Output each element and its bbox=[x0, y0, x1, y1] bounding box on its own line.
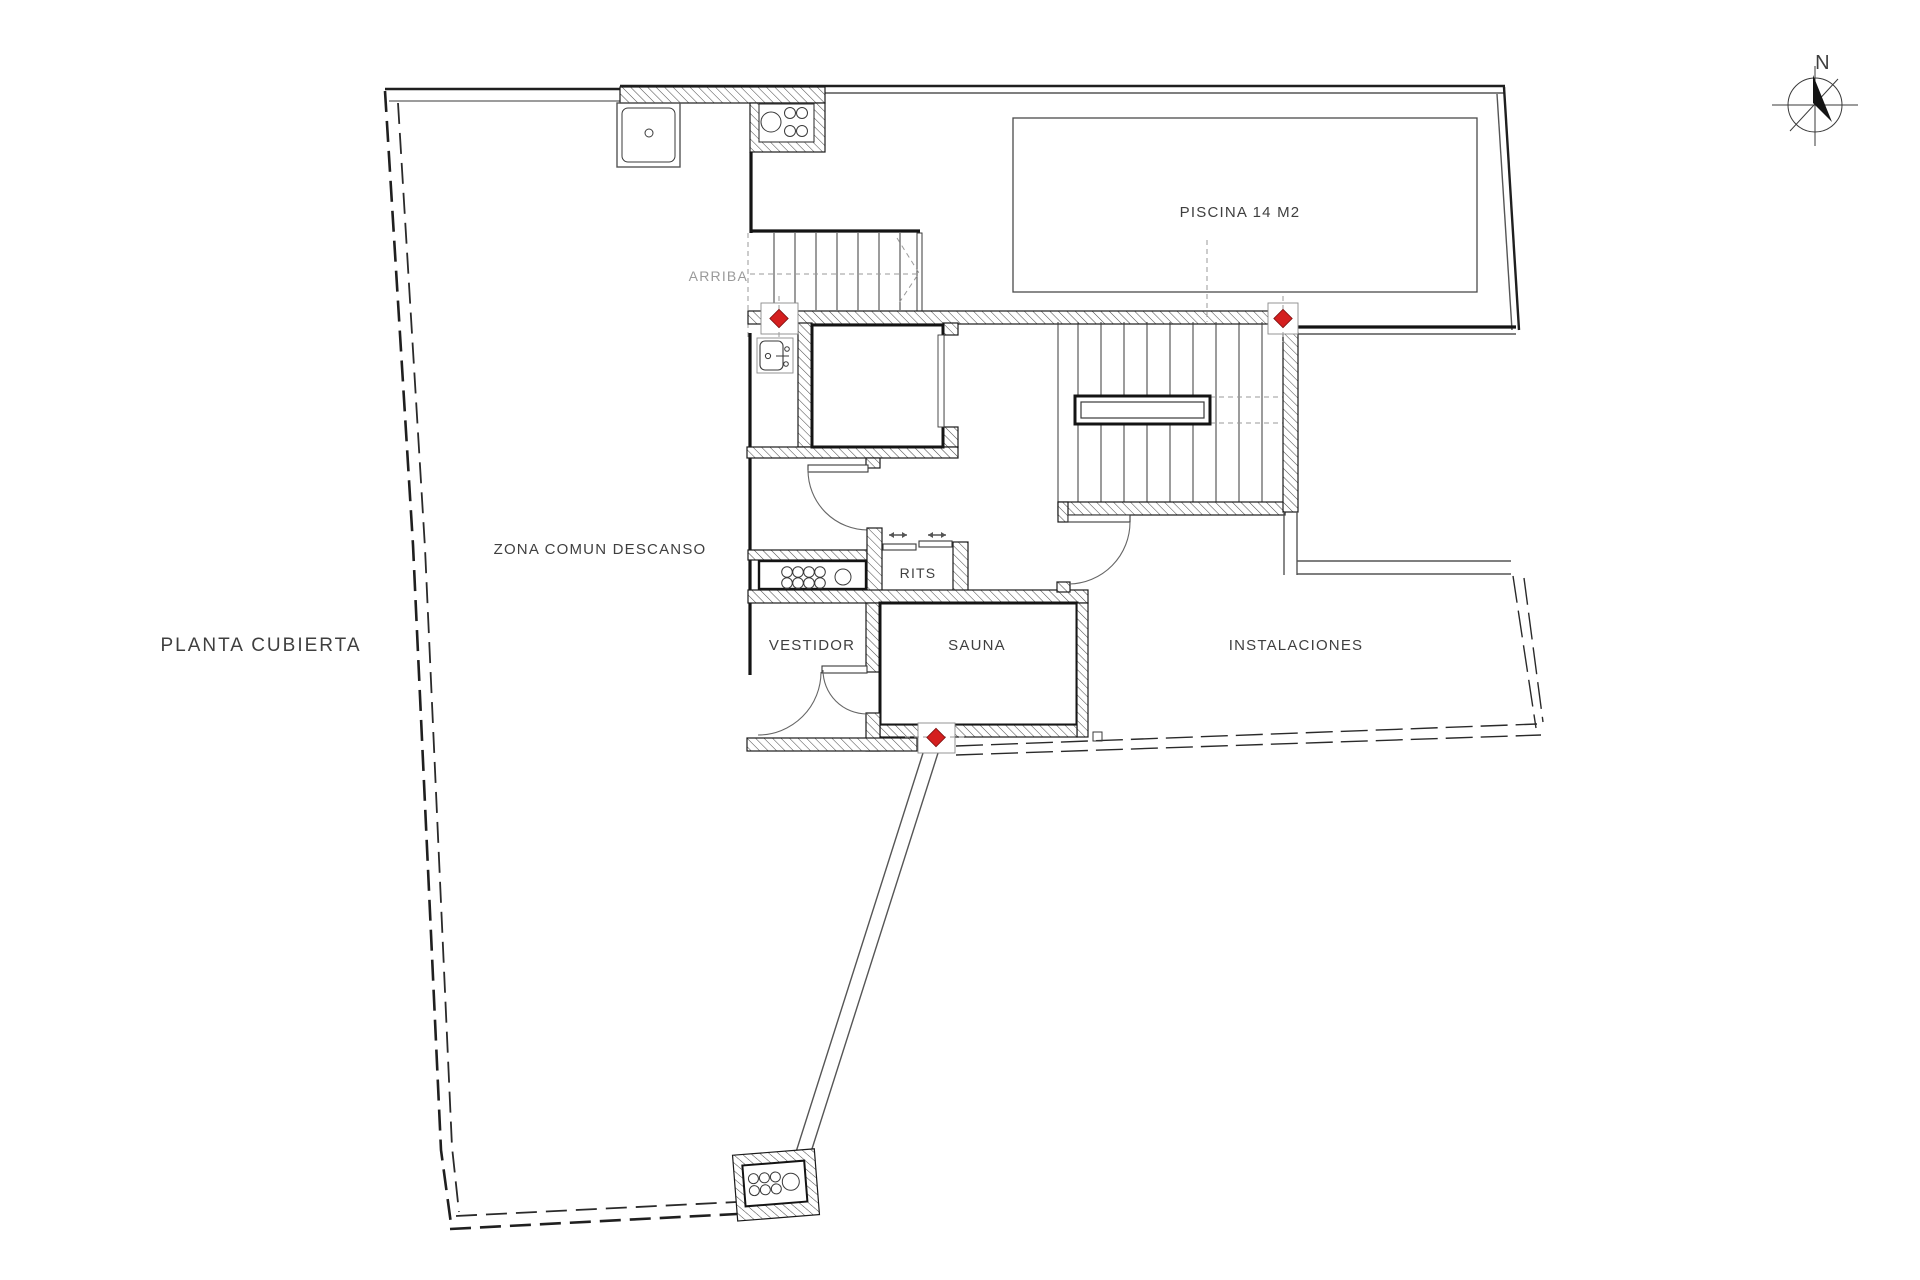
stair-bottom-door bbox=[1068, 515, 1130, 584]
zona-comun-label: ZONA COMUN DESCANSO bbox=[494, 541, 707, 558]
vent-box-top bbox=[759, 104, 814, 142]
skylight-box bbox=[617, 103, 680, 167]
cabinet-room bbox=[759, 561, 866, 589]
rits-label: RITS bbox=[900, 565, 937, 581]
sauna-room bbox=[880, 603, 1077, 725]
north-arrow: N bbox=[1772, 52, 1858, 146]
floor-plan-drawing: PISCINA 14 M2 ARRIBA bbox=[0, 0, 1920, 1280]
floor-plan-page: PISCINA 14 M2 ARRIBA bbox=[0, 0, 1920, 1280]
instalaciones-label: INSTALACIONES bbox=[1229, 637, 1364, 654]
pool-label: PISCINA 14 M2 bbox=[1180, 204, 1301, 221]
sauna-label: SAUNA bbox=[948, 637, 1006, 654]
vestidor-door bbox=[758, 666, 867, 735]
stair-direction-label: ARRIBA bbox=[689, 268, 748, 284]
sink bbox=[757, 338, 793, 373]
vent-box-bottom bbox=[733, 1149, 820, 1221]
north-label: N bbox=[1815, 52, 1831, 74]
rits-sliding-door bbox=[883, 532, 952, 550]
terrace-outline bbox=[385, 89, 737, 1229]
elevator-cab bbox=[812, 325, 943, 447]
vestidor-sauna-block: VESTIDOR SAUNA bbox=[747, 603, 1088, 751]
walkway bbox=[733, 753, 938, 1221]
stair-handrail bbox=[1075, 396, 1210, 424]
vestibule-door bbox=[808, 465, 868, 530]
vestidor-label: VESTIDOR bbox=[769, 637, 855, 654]
rits-block: RITS bbox=[748, 528, 1088, 603]
elevator-door bbox=[938, 335, 944, 427]
main-stair bbox=[1057, 240, 1298, 592]
red-diamond-marker bbox=[761, 296, 798, 342]
page-title: PLANTA CUBIERTA bbox=[160, 635, 361, 656]
